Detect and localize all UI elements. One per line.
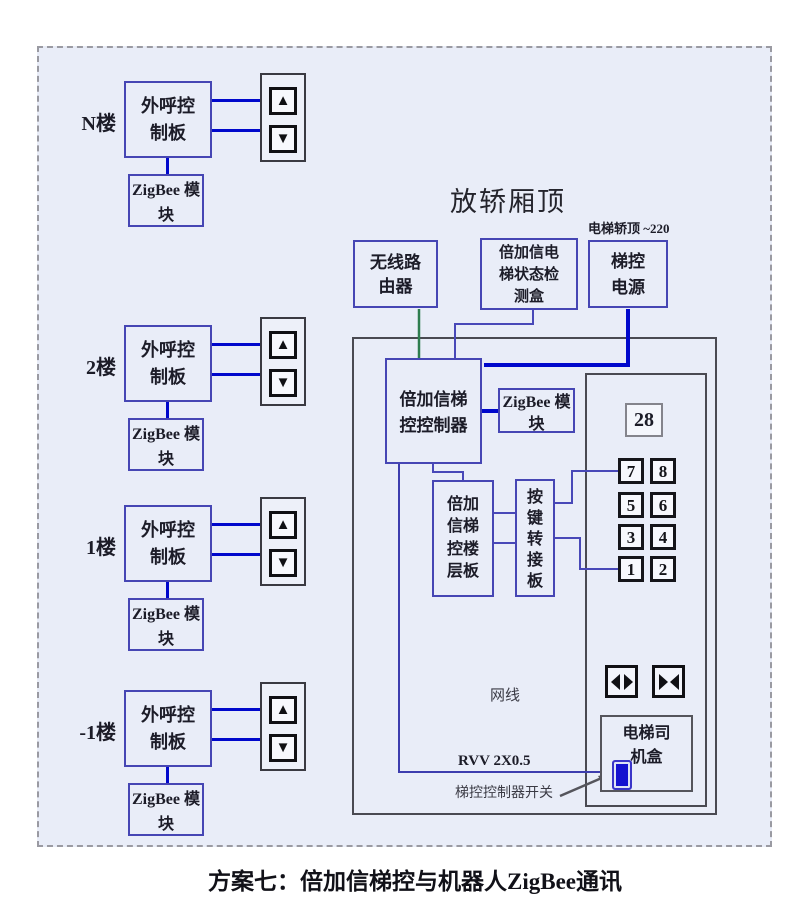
wire-board-panel (212, 708, 260, 711)
door-open-icon (610, 672, 634, 692)
network-cable-label: 网线 (490, 684, 520, 705)
zigbee-module: ZigBee 模块 (128, 418, 204, 471)
section-title-car-top: 放轿厢顶 (450, 180, 595, 219)
down-button[interactable]: ▼ (269, 734, 297, 762)
down-button[interactable]: ▼ (269, 549, 297, 577)
elevator-control-power-box: 梯控电源 (588, 240, 668, 308)
zigbee-module: ZigBee 模块 (128, 174, 204, 227)
down-arrow-icon: ▼ (276, 555, 291, 572)
floor-label: 1楼 (60, 531, 116, 560)
up-arrow-icon: ▲ (276, 93, 291, 110)
wire-board-panel (212, 523, 260, 526)
key-adapter-board-box: 按键转接板 (515, 479, 555, 597)
floor-button-1[interactable]: 1 (618, 556, 644, 582)
floor-label: 2楼 (60, 351, 116, 380)
floor-display: 28 (625, 403, 663, 437)
door-close-button[interactable] (652, 665, 685, 698)
door-open-button[interactable] (605, 665, 638, 698)
wire-board-panel (212, 343, 260, 346)
floor-group-1: 1楼 外呼控制板 ▲ ▼ ZigBee 模块 (60, 497, 310, 667)
down-arrow-icon: ▼ (276, 131, 291, 148)
floor-button-7[interactable]: 7 (618, 458, 644, 484)
up-button[interactable]: ▲ (269, 511, 297, 539)
wire-board-zigbee (166, 158, 169, 174)
diagram-canvas: N楼 外呼控制板 ▲ ▼ ZigBee 模块 2楼 外呼控制板 ▲ ▼ ZigB… (0, 0, 800, 922)
controller-switch[interactable] (612, 760, 632, 790)
car-zigbee-module-box: ZigBee 模块 (498, 388, 575, 433)
wire-board-zigbee (166, 582, 169, 598)
down-button[interactable]: ▼ (269, 125, 297, 153)
hall-button-panel: ▲ ▼ (260, 682, 306, 771)
floor-button-4[interactable]: 4 (650, 524, 676, 550)
up-arrow-icon: ▲ (276, 702, 291, 719)
floor-board-box: 倍加信梯控楼层板 (432, 480, 494, 597)
floor-button-6[interactable]: 6 (650, 492, 676, 518)
floor-label: -1楼 (60, 716, 116, 745)
floor-button-8[interactable]: 8 (650, 458, 676, 484)
wire-board-zigbee (166, 767, 169, 783)
door-close-icon (657, 672, 681, 692)
diagram-title: 方案七：倍加信梯控与机器人ZigBee通讯 (30, 862, 800, 896)
elevator-status-detector-box: 倍加信电梯状态检测盒 (480, 238, 578, 310)
power-note: 电梯轿顶 ~220 (588, 218, 670, 237)
floor-group-2: 2楼 外呼控制板 ▲ ▼ ZigBee 模块 (60, 317, 310, 487)
zigbee-module: ZigBee 模块 (128, 783, 204, 836)
floor-button-3[interactable]: 3 (618, 524, 644, 550)
up-button[interactable]: ▲ (269, 696, 297, 724)
up-arrow-icon: ▲ (276, 337, 291, 354)
up-button[interactable]: ▲ (269, 87, 297, 115)
wire-board-zigbee (166, 402, 169, 418)
wire-board-panel (212, 99, 260, 102)
up-arrow-icon: ▲ (276, 517, 291, 534)
wire-board-panel (212, 738, 260, 741)
floor-button-5[interactable]: 5 (618, 492, 644, 518)
wire-board-panel (212, 553, 260, 556)
wire-board-panel (212, 129, 260, 132)
down-button[interactable]: ▼ (269, 369, 297, 397)
hall-call-board: 外呼控制板 (124, 325, 212, 402)
floor-button-2[interactable]: 2 (650, 556, 676, 582)
floor-group-n: N楼 外呼控制板 ▲ ▼ ZigBee 模块 (60, 73, 310, 243)
hall-button-panel: ▲ ▼ (260, 317, 306, 406)
down-arrow-icon: ▼ (276, 375, 291, 392)
hall-button-panel: ▲ ▼ (260, 73, 306, 162)
hall-call-board: 外呼控制板 (124, 690, 212, 767)
floor-label: N楼 (60, 107, 116, 136)
wireless-router-box: 无线路由器 (353, 240, 438, 308)
wire-board-panel (212, 373, 260, 376)
down-arrow-icon: ▼ (276, 740, 291, 757)
zigbee-module: ZigBee 模块 (128, 598, 204, 651)
up-button[interactable]: ▲ (269, 331, 297, 359)
hall-call-board: 外呼控制板 (124, 505, 212, 582)
floor-group-minus1: -1楼 外呼控制板 ▲ ▼ ZigBee 模块 (60, 682, 310, 852)
switch-annotation-label: 梯控控制器开关 (455, 782, 553, 802)
hall-button-panel: ▲ ▼ (260, 497, 306, 586)
hall-call-board: 外呼控制板 (124, 81, 212, 158)
rvv-cable-label: RVV 2X0.5 (458, 753, 531, 770)
beijiaxin-controller-box: 倍加信梯控控制器 (385, 358, 482, 464)
